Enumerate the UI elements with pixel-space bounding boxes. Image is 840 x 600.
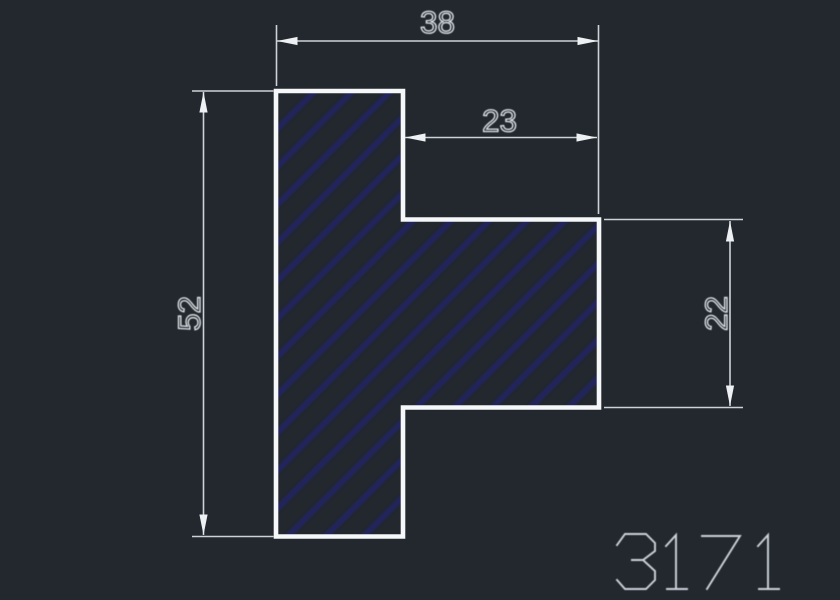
svg-text:23: 23 (482, 103, 517, 139)
svg-text:22: 22 (698, 296, 734, 331)
svg-text:52: 52 (171, 296, 207, 331)
svg-text:38: 38 (420, 4, 455, 40)
